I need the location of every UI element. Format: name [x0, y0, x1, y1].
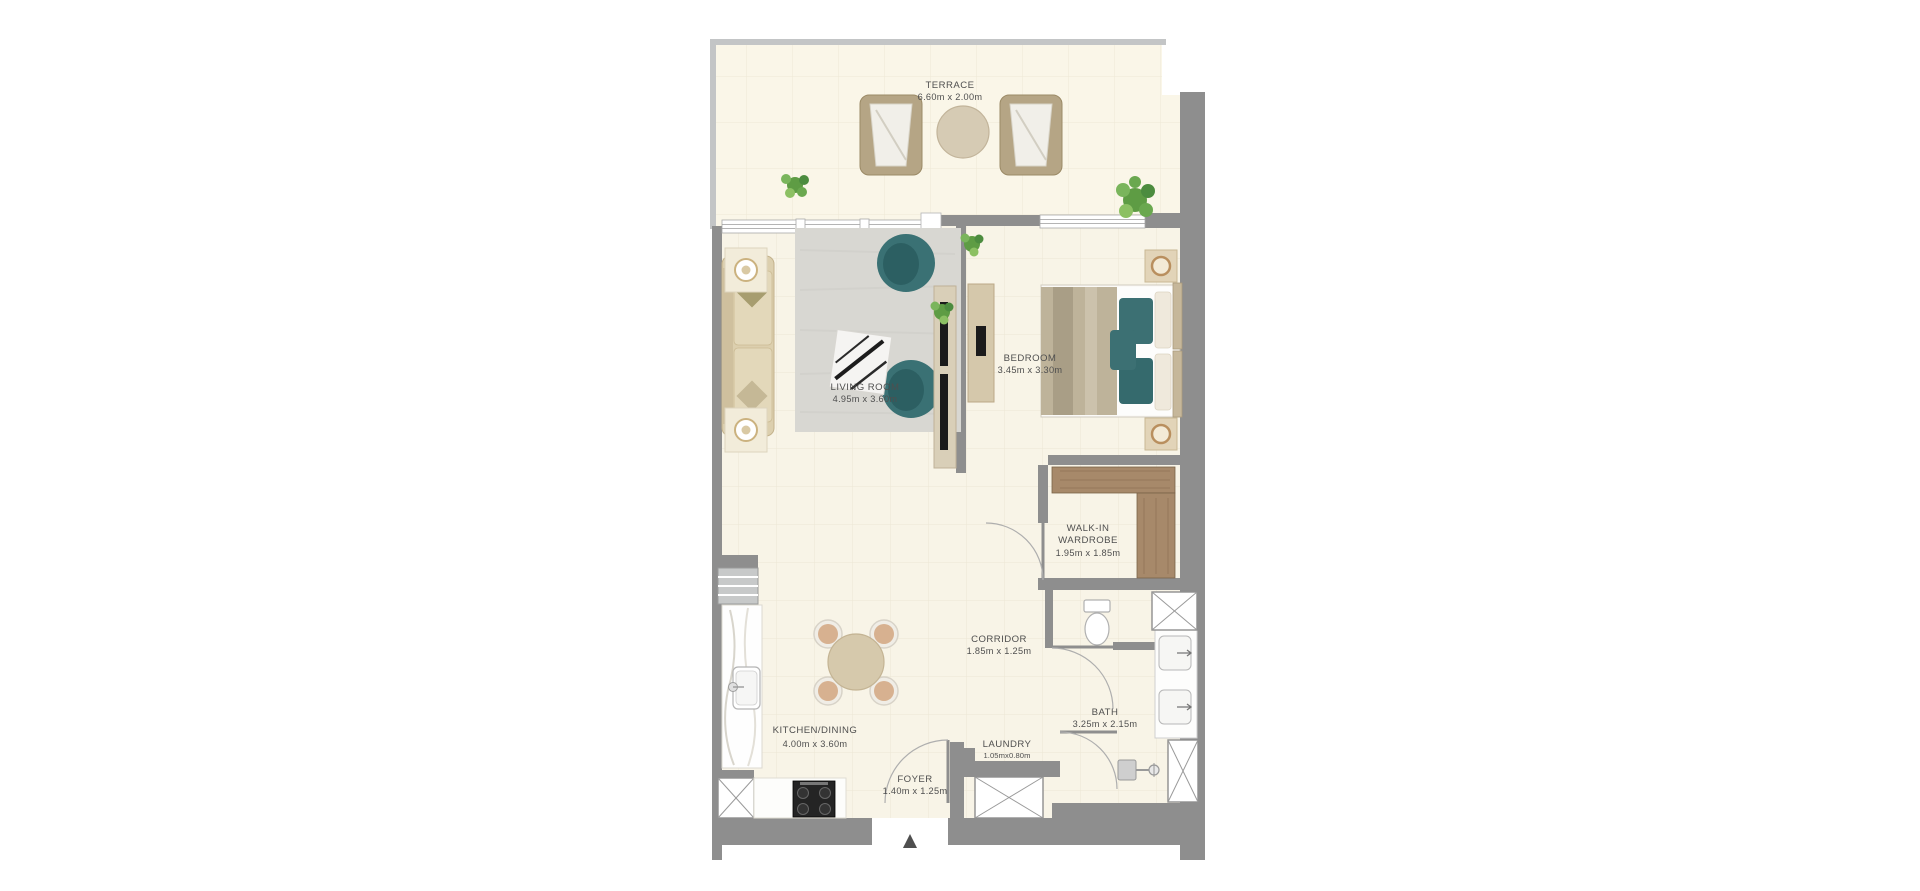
fridge: [718, 568, 758, 604]
wall-wc-nook: [1113, 642, 1155, 650]
foyer-dims: 1.40m x 1.25m: [883, 786, 948, 796]
wall-laundry-stub: [950, 748, 975, 762]
wall-kitchen-bottom-stub: [718, 770, 754, 778]
terrace-wall-top: [710, 39, 1166, 45]
wardrobe-label-line1: WALK-IN: [1067, 523, 1110, 534]
wardrobe-label-line2: WARDROBE: [1058, 535, 1118, 546]
bath-label: BATH: [1092, 707, 1119, 718]
kitchen-dining-label: KITCHEN/DINING: [773, 725, 858, 736]
floor-plan: ▲ TERRACE 6.60m x 2.00m LIVING ROOM 4.95…: [700, 30, 1230, 862]
bedroom-label: BEDROOM: [1004, 353, 1057, 364]
cooktop: [754, 778, 846, 818]
nightstand-bottom: [1145, 418, 1177, 450]
dining-table: [828, 634, 884, 690]
wall-bath-bottom: [1052, 803, 1205, 818]
wall-bath-top: [1038, 578, 1205, 590]
bedroom-dresser: [968, 284, 994, 402]
terrace-round-table: [937, 106, 989, 158]
entrance-arrow-icon: ▲: [898, 827, 922, 854]
laundry-closet: [975, 777, 1043, 818]
terrace-lounge-chair-right: [1000, 95, 1062, 175]
window-jamb-box: [921, 213, 941, 229]
wall-bath-left-stub: [1045, 590, 1053, 648]
wardrobe-dims: 1.95m x 1.85m: [1056, 548, 1121, 558]
floor-plan-page: ▲ TERRACE 6.60m x 2.00m LIVING ROOM 4.95…: [0, 0, 1920, 891]
wall-kitchen-stub: [714, 555, 758, 568]
wall-laundry-top: [964, 761, 1060, 777]
bedroom-dims: 3.45m x 3.30m: [998, 365, 1063, 375]
shaft-box-kitchen: [718, 778, 754, 818]
living-room-label: LIVING ROOM: [831, 382, 900, 393]
terrace-dims: 6.60m x 2.00m: [918, 92, 983, 102]
kitchen-sink: [729, 667, 761, 709]
nightstand-top: [1145, 250, 1177, 282]
terrace-label: TERRACE: [926, 80, 975, 91]
side-table-lamp-bottom: [725, 408, 767, 452]
corridor-label: CORRIDOR: [971, 634, 1027, 645]
laundry-dims: 1.05mx0.80m: [983, 751, 1030, 760]
kitchen-dining-dims: 4.00m x 3.60m: [783, 739, 848, 749]
toilet: [1084, 600, 1110, 645]
bath-dims: 3.25m x 2.15m: [1073, 719, 1138, 729]
laundry-label: LAUNDRY: [983, 739, 1032, 750]
corridor-dims: 1.85m x 1.25m: [967, 646, 1032, 656]
floor-plan-drawing: ▲ TERRACE 6.60m x 2.00m LIVING ROOM 4.95…: [700, 30, 1230, 862]
terrace-wall-left: [710, 39, 716, 229]
living-room-furniture: [722, 228, 961, 468]
wall-stub-terrace-right: [1145, 213, 1183, 228]
foyer-label: FOYER: [897, 774, 932, 785]
vanity-double-sink: [1155, 628, 1197, 738]
shaft-box-bath-top: [1152, 592, 1197, 630]
wall-bedroom-wardrobe: [1048, 455, 1180, 465]
shaft-box-bath-bottom: [1168, 740, 1198, 802]
side-table-lamp-top: [725, 248, 767, 292]
armchair-top: [877, 234, 935, 292]
wall-bottom-right: [948, 818, 1205, 845]
entrance: ▲: [872, 818, 948, 854]
bed: [1041, 283, 1182, 417]
wall-bottom-left: [712, 818, 872, 845]
wall-wardrobe-left: [1038, 465, 1048, 523]
terrace-lounge-chair-left: [860, 95, 922, 175]
living-room-dims: 4.95m x 3.60m: [833, 394, 898, 404]
wall-left: [712, 226, 722, 860]
